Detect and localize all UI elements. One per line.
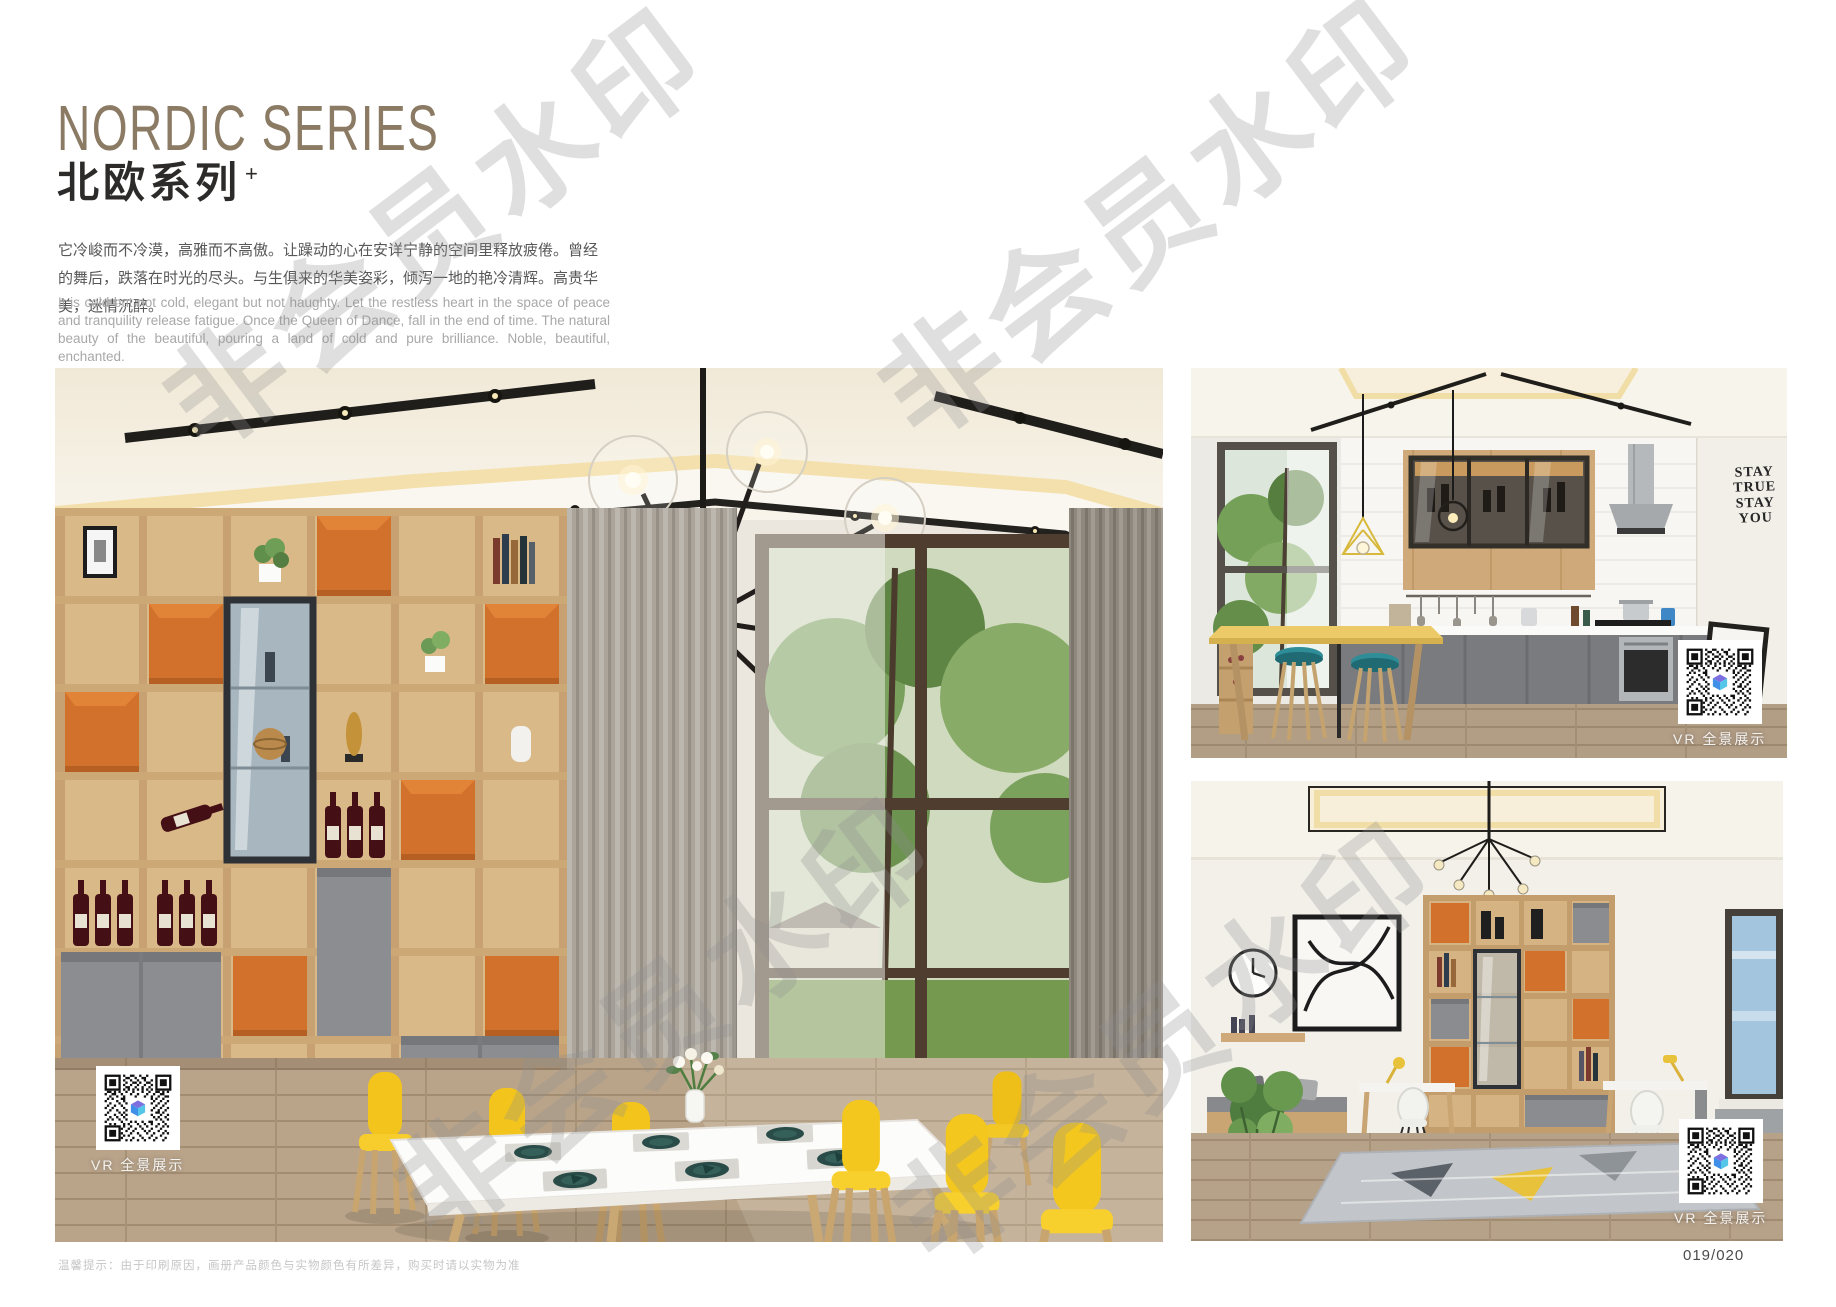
series-title-chinese: 北欧系列+: [57, 162, 258, 204]
footer-print-disclaimer: 温馨提示：由于印刷原因，画册产品颜色与实物颜色有所差异，购买时请以实物为准: [58, 1257, 521, 1273]
study-window: [1715, 909, 1783, 1139]
qr-code-dining: [96, 1066, 180, 1150]
wall-clock: [1230, 950, 1276, 996]
qr-code-study: [1679, 1119, 1763, 1203]
wall-art-line: TRUE: [1727, 479, 1782, 496]
vr-badge-kitchen: VR 全景展示: [1673, 640, 1766, 749]
photo-kitchen: STAY TRUE STAY YOU VR 全景展示: [1191, 368, 1787, 758]
catalog-page: NORDIC SERIES 北欧系列+ 它冷峻而不冷漠，高雅而不高傲。让躁动的心…: [0, 0, 1836, 1307]
series-title-chinese-text: 北欧系列: [57, 159, 241, 206]
series-title-english: NORDIC SERIES: [57, 96, 439, 160]
qr-code-icon: [100, 1070, 176, 1146]
wall-art-stay-true-stay-you: STAY TRUE STAY YOU: [1727, 464, 1783, 527]
photo-dining-room: VR 全景展示: [55, 368, 1163, 1242]
qr-code-icon: [1682, 644, 1758, 720]
vr-panorama-label: VR 全景展示: [91, 1155, 184, 1175]
vr-badge-dining: VR 全景展示: [91, 1066, 184, 1175]
qr-code-icon: [1683, 1123, 1759, 1199]
wall-art-line: YOU: [1729, 510, 1784, 527]
abstract-wall-art: [1295, 917, 1399, 1029]
description-english: It is cold but not cold, elegant but not…: [58, 294, 610, 366]
vr-panorama-label: VR 全景展示: [1674, 1208, 1767, 1228]
vr-panorama-label: VR 全景展示: [1673, 729, 1766, 749]
oven: [1619, 637, 1673, 701]
upper-glass-cabinet: [1411, 458, 1587, 546]
glass-door: [1475, 951, 1519, 1087]
dining-room-illustration: [55, 368, 1163, 1242]
page-number: 019/020: [1683, 1247, 1744, 1264]
photo-study-room: VR 全景展示: [1191, 781, 1783, 1241]
qr-code-kitchen: [1678, 640, 1762, 724]
wall-art-line: STAY: [1728, 495, 1783, 512]
vr-badge-study: VR 全景展示: [1674, 1119, 1767, 1228]
window-and-curtains: [567, 508, 1163, 1118]
plus-superscript: +: [245, 161, 262, 186]
